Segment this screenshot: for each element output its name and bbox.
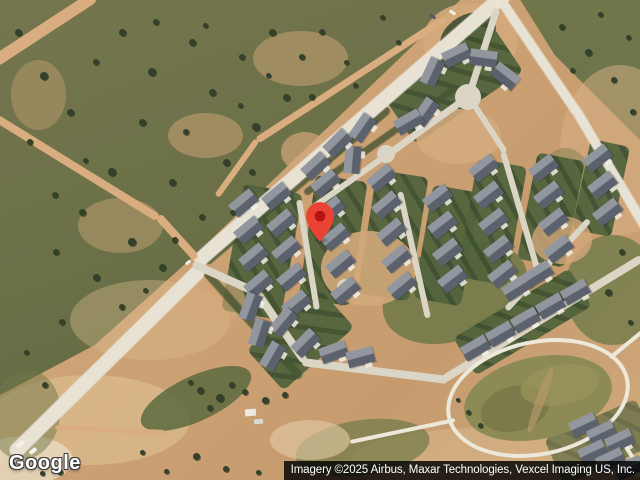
tree — [27, 139, 33, 145]
tree — [230, 210, 235, 215]
tree — [209, 89, 216, 96]
tree — [83, 158, 88, 163]
tree — [380, 15, 385, 20]
tree — [269, 29, 276, 36]
tree — [283, 94, 290, 101]
scrub-mottle — [168, 113, 243, 158]
tree — [119, 304, 125, 310]
tree — [344, 60, 349, 65]
tree — [169, 179, 176, 186]
tree — [570, 68, 575, 73]
tree — [40, 72, 48, 80]
tree — [309, 94, 315, 100]
tree — [223, 466, 229, 472]
attribution-text: Imagery ©2025 Airbus, Maxar Technologies… — [291, 464, 635, 476]
tree — [466, 410, 471, 415]
tree — [42, 382, 48, 388]
tree — [238, 103, 243, 108]
tree — [143, 288, 148, 293]
tree — [67, 109, 74, 116]
tree — [478, 423, 483, 428]
house — [343, 146, 361, 174]
tree — [164, 469, 169, 474]
tree — [223, 159, 230, 166]
tree — [256, 470, 261, 475]
tree — [15, 29, 22, 36]
tree — [207, 405, 213, 411]
trail-segment — [0, 115, 160, 222]
tree — [119, 29, 126, 36]
tree — [626, 35, 631, 40]
cul-de-sac — [377, 145, 395, 163]
house — [345, 346, 375, 368]
tree — [24, 350, 29, 355]
tree — [140, 450, 145, 455]
scrub-mottle — [78, 198, 163, 253]
tree — [242, 389, 248, 395]
tree — [249, 169, 255, 175]
tree — [239, 54, 245, 60]
tree — [79, 209, 86, 216]
tree — [630, 109, 636, 115]
tree — [197, 387, 204, 394]
vehicle — [253, 418, 262, 424]
tree — [172, 237, 178, 243]
tree — [159, 264, 166, 271]
tree — [598, 12, 603, 17]
tree — [188, 380, 193, 385]
tree — [203, 23, 208, 28]
tree — [59, 319, 65, 325]
satellite-map[interactable]: Google Imagery ©2025 Airbus, Maxar Techn… — [0, 0, 640, 480]
tree — [319, 29, 325, 35]
google-logo[interactable]: Google — [9, 452, 81, 475]
tree — [353, 83, 358, 88]
map-pin-icon[interactable] — [306, 202, 334, 242]
tree — [262, 397, 269, 404]
tree — [153, 19, 159, 25]
scrub-mottle — [11, 60, 66, 130]
tree — [139, 119, 146, 126]
tree — [229, 382, 235, 388]
tree — [252, 123, 260, 131]
tree — [619, 249, 625, 255]
tree — [628, 320, 633, 325]
tree — [611, 77, 617, 83]
tree — [193, 453, 200, 460]
vehicle — [244, 408, 256, 416]
tree — [456, 398, 460, 402]
tree — [128, 238, 136, 246]
tree — [299, 54, 305, 60]
tree — [585, 49, 592, 56]
vehicle — [185, 259, 192, 265]
tree — [266, 73, 271, 78]
tree — [93, 59, 99, 65]
tree — [108, 168, 116, 176]
cul-de-sac — [455, 84, 481, 110]
tree — [199, 214, 205, 220]
tree — [559, 24, 565, 30]
tree — [148, 68, 156, 76]
attribution-bar: Imagery ©2025 Airbus, Maxar Technologies… — [284, 461, 640, 480]
tree — [396, 40, 401, 45]
tree — [605, 289, 612, 296]
tree — [216, 394, 224, 402]
tree — [189, 39, 196, 46]
dirt-lot — [270, 420, 350, 460]
tree — [93, 274, 100, 281]
tree — [52, 192, 58, 198]
tree — [53, 249, 59, 255]
tree — [282, 392, 288, 398]
tree — [183, 129, 189, 135]
